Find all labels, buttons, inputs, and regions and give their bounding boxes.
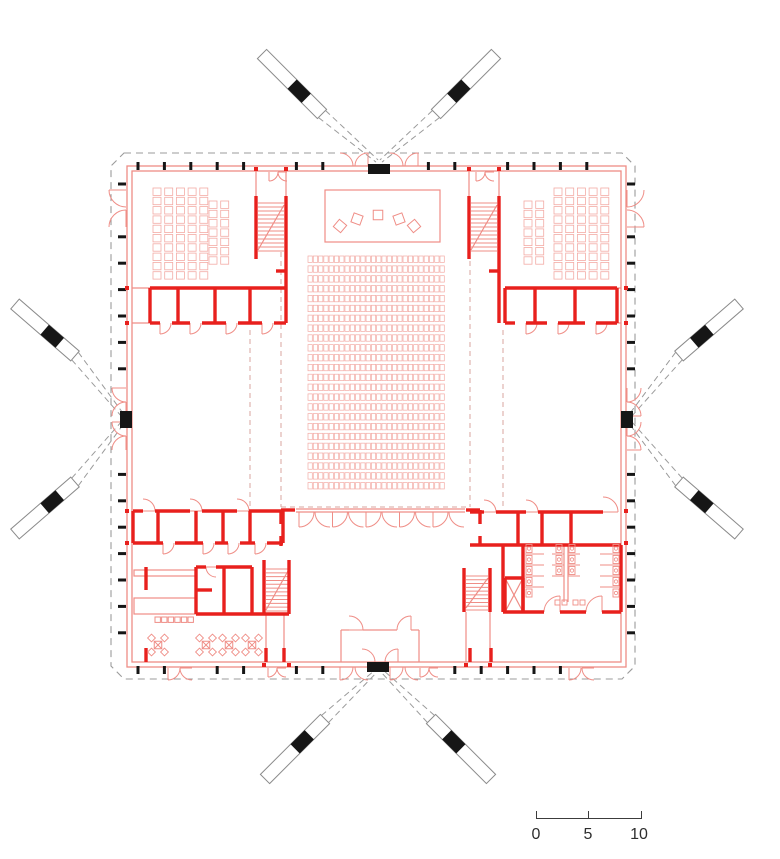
stairs xyxy=(258,203,497,611)
scale-bar: 0 5 10 xyxy=(530,806,646,850)
floor-plan-page: 0 5 10 xyxy=(0,0,780,859)
scale-label-10: 10 xyxy=(630,826,648,844)
wc-fixtures xyxy=(525,545,620,606)
auditorium-seating xyxy=(308,256,444,489)
scale-label-5: 5 xyxy=(584,826,593,844)
scale-bar-tick-5 xyxy=(588,811,589,819)
stage-chairs xyxy=(333,210,420,232)
servery-counter xyxy=(155,617,193,622)
side-hall-seating xyxy=(153,188,609,279)
scale-bar-tick-0 xyxy=(536,811,537,819)
floor-plan-drawing xyxy=(0,0,780,859)
scale-bar-tick-10 xyxy=(641,811,642,819)
scale-label-0: 0 xyxy=(532,826,541,844)
cafe-tables xyxy=(148,634,263,656)
